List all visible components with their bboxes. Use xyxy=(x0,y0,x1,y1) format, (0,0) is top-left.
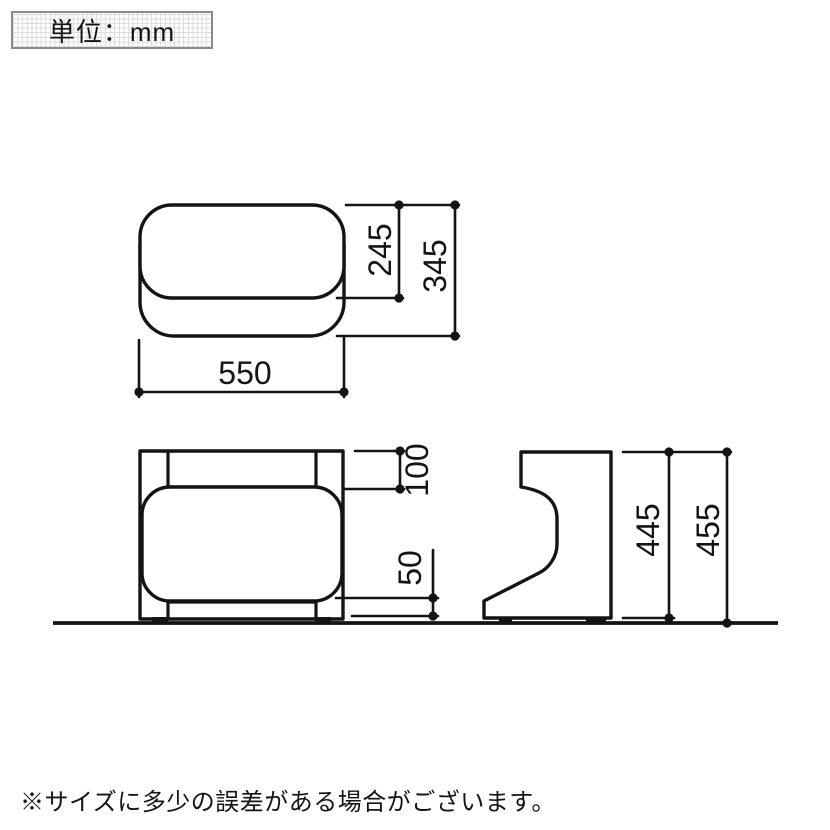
dimension-drawing: 245 345 550 100 50 xyxy=(0,0,830,830)
front-view-dimensions: 100 50 xyxy=(336,443,438,620)
side-view xyxy=(484,452,611,623)
top-view-cushion-outline xyxy=(140,205,344,298)
dimension-dot xyxy=(428,611,437,620)
dimension-dot xyxy=(722,447,731,456)
dimension-dot xyxy=(664,447,673,456)
top-view xyxy=(140,205,344,336)
dimension-dot xyxy=(134,387,143,396)
dimension-label-550: 550 xyxy=(218,355,271,391)
dimension-label-50: 50 xyxy=(392,550,428,586)
dimension-label-100: 100 xyxy=(399,443,435,496)
dimension-label-445: 445 xyxy=(630,503,666,556)
dimension-dot xyxy=(428,593,437,602)
dimension-diagram-page: 単位：mm 245 345 xyxy=(0,0,830,830)
dimension-dot xyxy=(394,200,403,209)
front-view xyxy=(140,451,343,623)
dimension-label-245: 245 xyxy=(362,223,398,276)
dimension-dot xyxy=(450,200,459,209)
dimension-dot xyxy=(450,331,459,340)
side-view-dimensions: 445 455 xyxy=(623,447,732,627)
front-view-cushion xyxy=(142,487,342,601)
dimension-dot xyxy=(394,293,403,302)
size-disclaimer-note: ※サイズに多少の誤差がある場合がございます。 xyxy=(20,782,556,817)
side-view-profile xyxy=(484,452,611,618)
dimension-label-455: 455 xyxy=(690,503,726,556)
dimension-dot xyxy=(339,387,348,396)
dimension-label-345: 345 xyxy=(417,239,453,292)
